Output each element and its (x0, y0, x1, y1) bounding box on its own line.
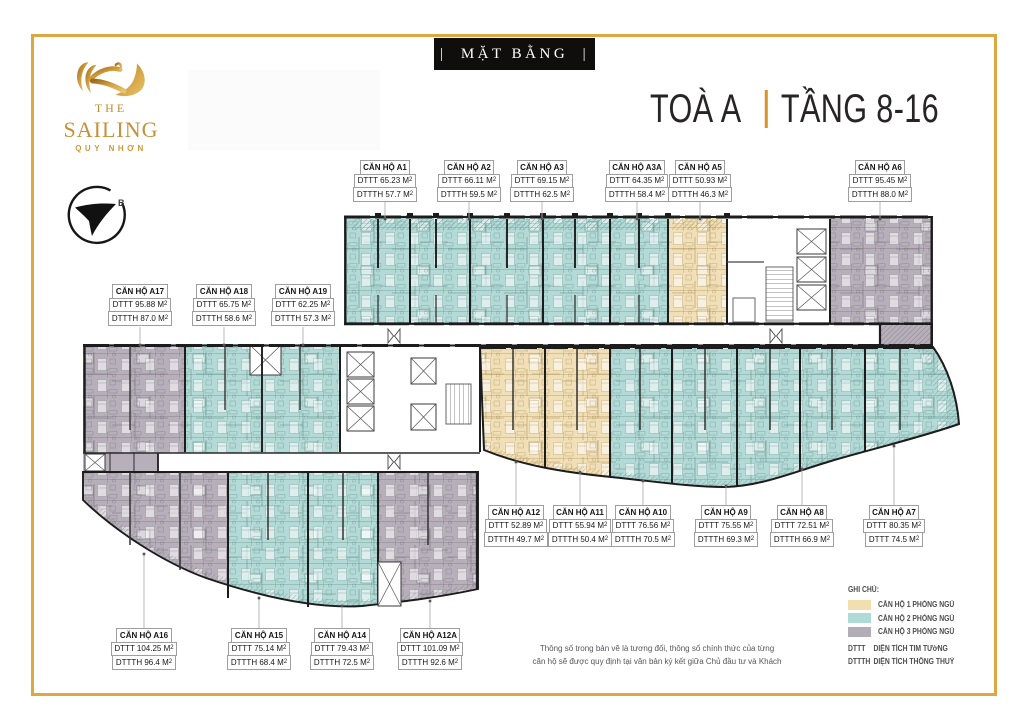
svg-text:B: B (118, 198, 125, 208)
